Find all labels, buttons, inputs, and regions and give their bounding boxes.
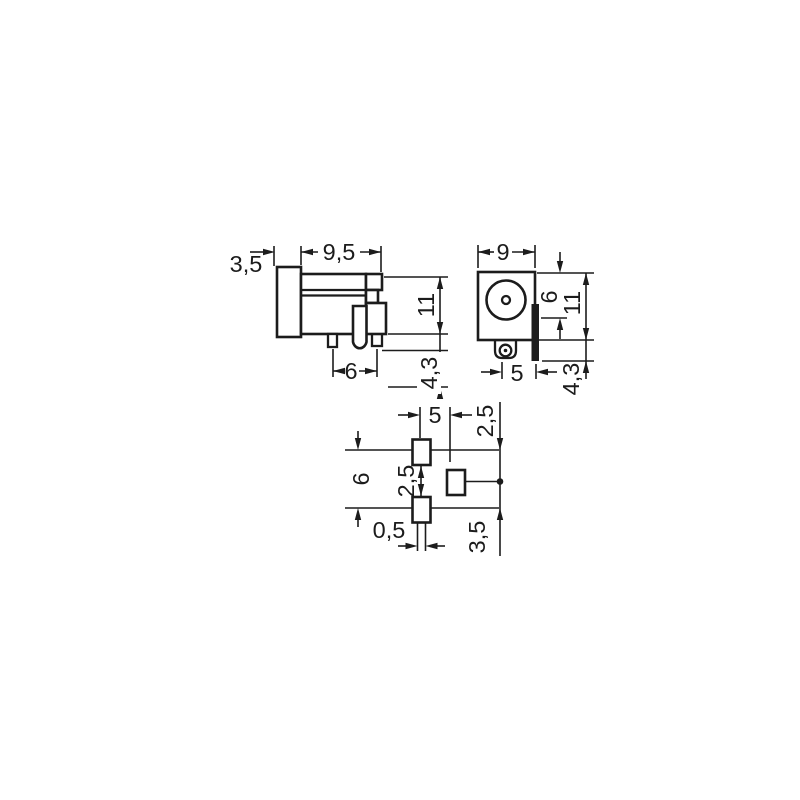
dim-label-footprint-upper-row-offset: 2,5 (472, 405, 498, 438)
arrowhead-up (437, 277, 443, 289)
side-terminal-block-bottom (366, 303, 386, 334)
arrowhead-up (557, 318, 563, 330)
dim-label-side-body-depth: 9,5 (323, 239, 356, 265)
dimension-drawing: 3,5 9,5 6 11 4,3 (0, 0, 800, 800)
side-left-pin (328, 334, 337, 347)
chain-dimension-dot (497, 478, 504, 485)
front-lug-hole-center (504, 349, 508, 353)
arrowhead-up (583, 273, 589, 285)
arrowhead-down (355, 438, 361, 450)
dim-label-side-pin-protrusion: 4,3 (416, 357, 442, 390)
arrowhead-left (426, 543, 438, 549)
arrowhead-down (497, 438, 503, 450)
side-center-plunger (353, 306, 367, 348)
arrowhead-left (536, 369, 548, 375)
dim-label-footprint-column-height: 6 (348, 472, 374, 485)
footprint-pad-top (413, 440, 431, 466)
dim-label-footprint-lower-row-offset: 3,5 (464, 521, 490, 554)
front-terminal-blade (532, 304, 540, 361)
footprint-view: 5 2,5 3,5 6 2,5 0,5 (345, 402, 503, 556)
side-flange-outline (277, 267, 301, 337)
dim-label-footprint-pad-span: 5 (428, 402, 441, 428)
arrowhead-down (557, 261, 563, 273)
arrowhead-up (355, 508, 361, 520)
dim-label-front-width: 9 (496, 239, 509, 265)
arrowhead-right (490, 369, 502, 375)
arrowhead-right (406, 543, 418, 549)
dim-label-front-pin-offset: 5 (510, 360, 523, 386)
arrowhead-left (333, 368, 345, 374)
dim-label-front-height: 11 (559, 291, 585, 315)
dim-label-side-pin-spacing: 6 (344, 358, 357, 384)
arrowhead-left (478, 249, 490, 255)
dim-label-footprint-slot-width: 0,5 (373, 517, 406, 543)
arrowhead-left (301, 249, 313, 255)
arrowhead-up (497, 508, 503, 520)
arrowhead-right (523, 249, 535, 255)
side-terminal-block-mid (366, 290, 378, 303)
front-view: 9 6 11 4,3 5 (478, 239, 594, 395)
arrowhead-right (365, 368, 377, 374)
footprint-pad-middle (447, 470, 465, 495)
arrowhead-right (408, 412, 420, 418)
dim-label-front-tab-protrusion: 4,3 (558, 363, 584, 396)
arrowhead-left (450, 412, 462, 418)
arrowhead-down (583, 328, 589, 340)
dim-label-side-height: 11 (413, 293, 439, 317)
dim-label-footprint-pad-gap: 2,5 (393, 465, 419, 498)
footprint-pad-bottom (413, 497, 431, 523)
side-view: 3,5 9,5 6 11 4,3 (230, 239, 448, 399)
arrowhead-right (369, 249, 381, 255)
arrowhead-down (437, 322, 443, 334)
drawing-page: 3,5 9,5 6 11 4,3 (0, 0, 800, 800)
dim-label-side-flange-depth: 3,5 (230, 251, 263, 277)
side-terminal-block-top (366, 274, 382, 290)
front-center-pin-circle (502, 296, 510, 304)
